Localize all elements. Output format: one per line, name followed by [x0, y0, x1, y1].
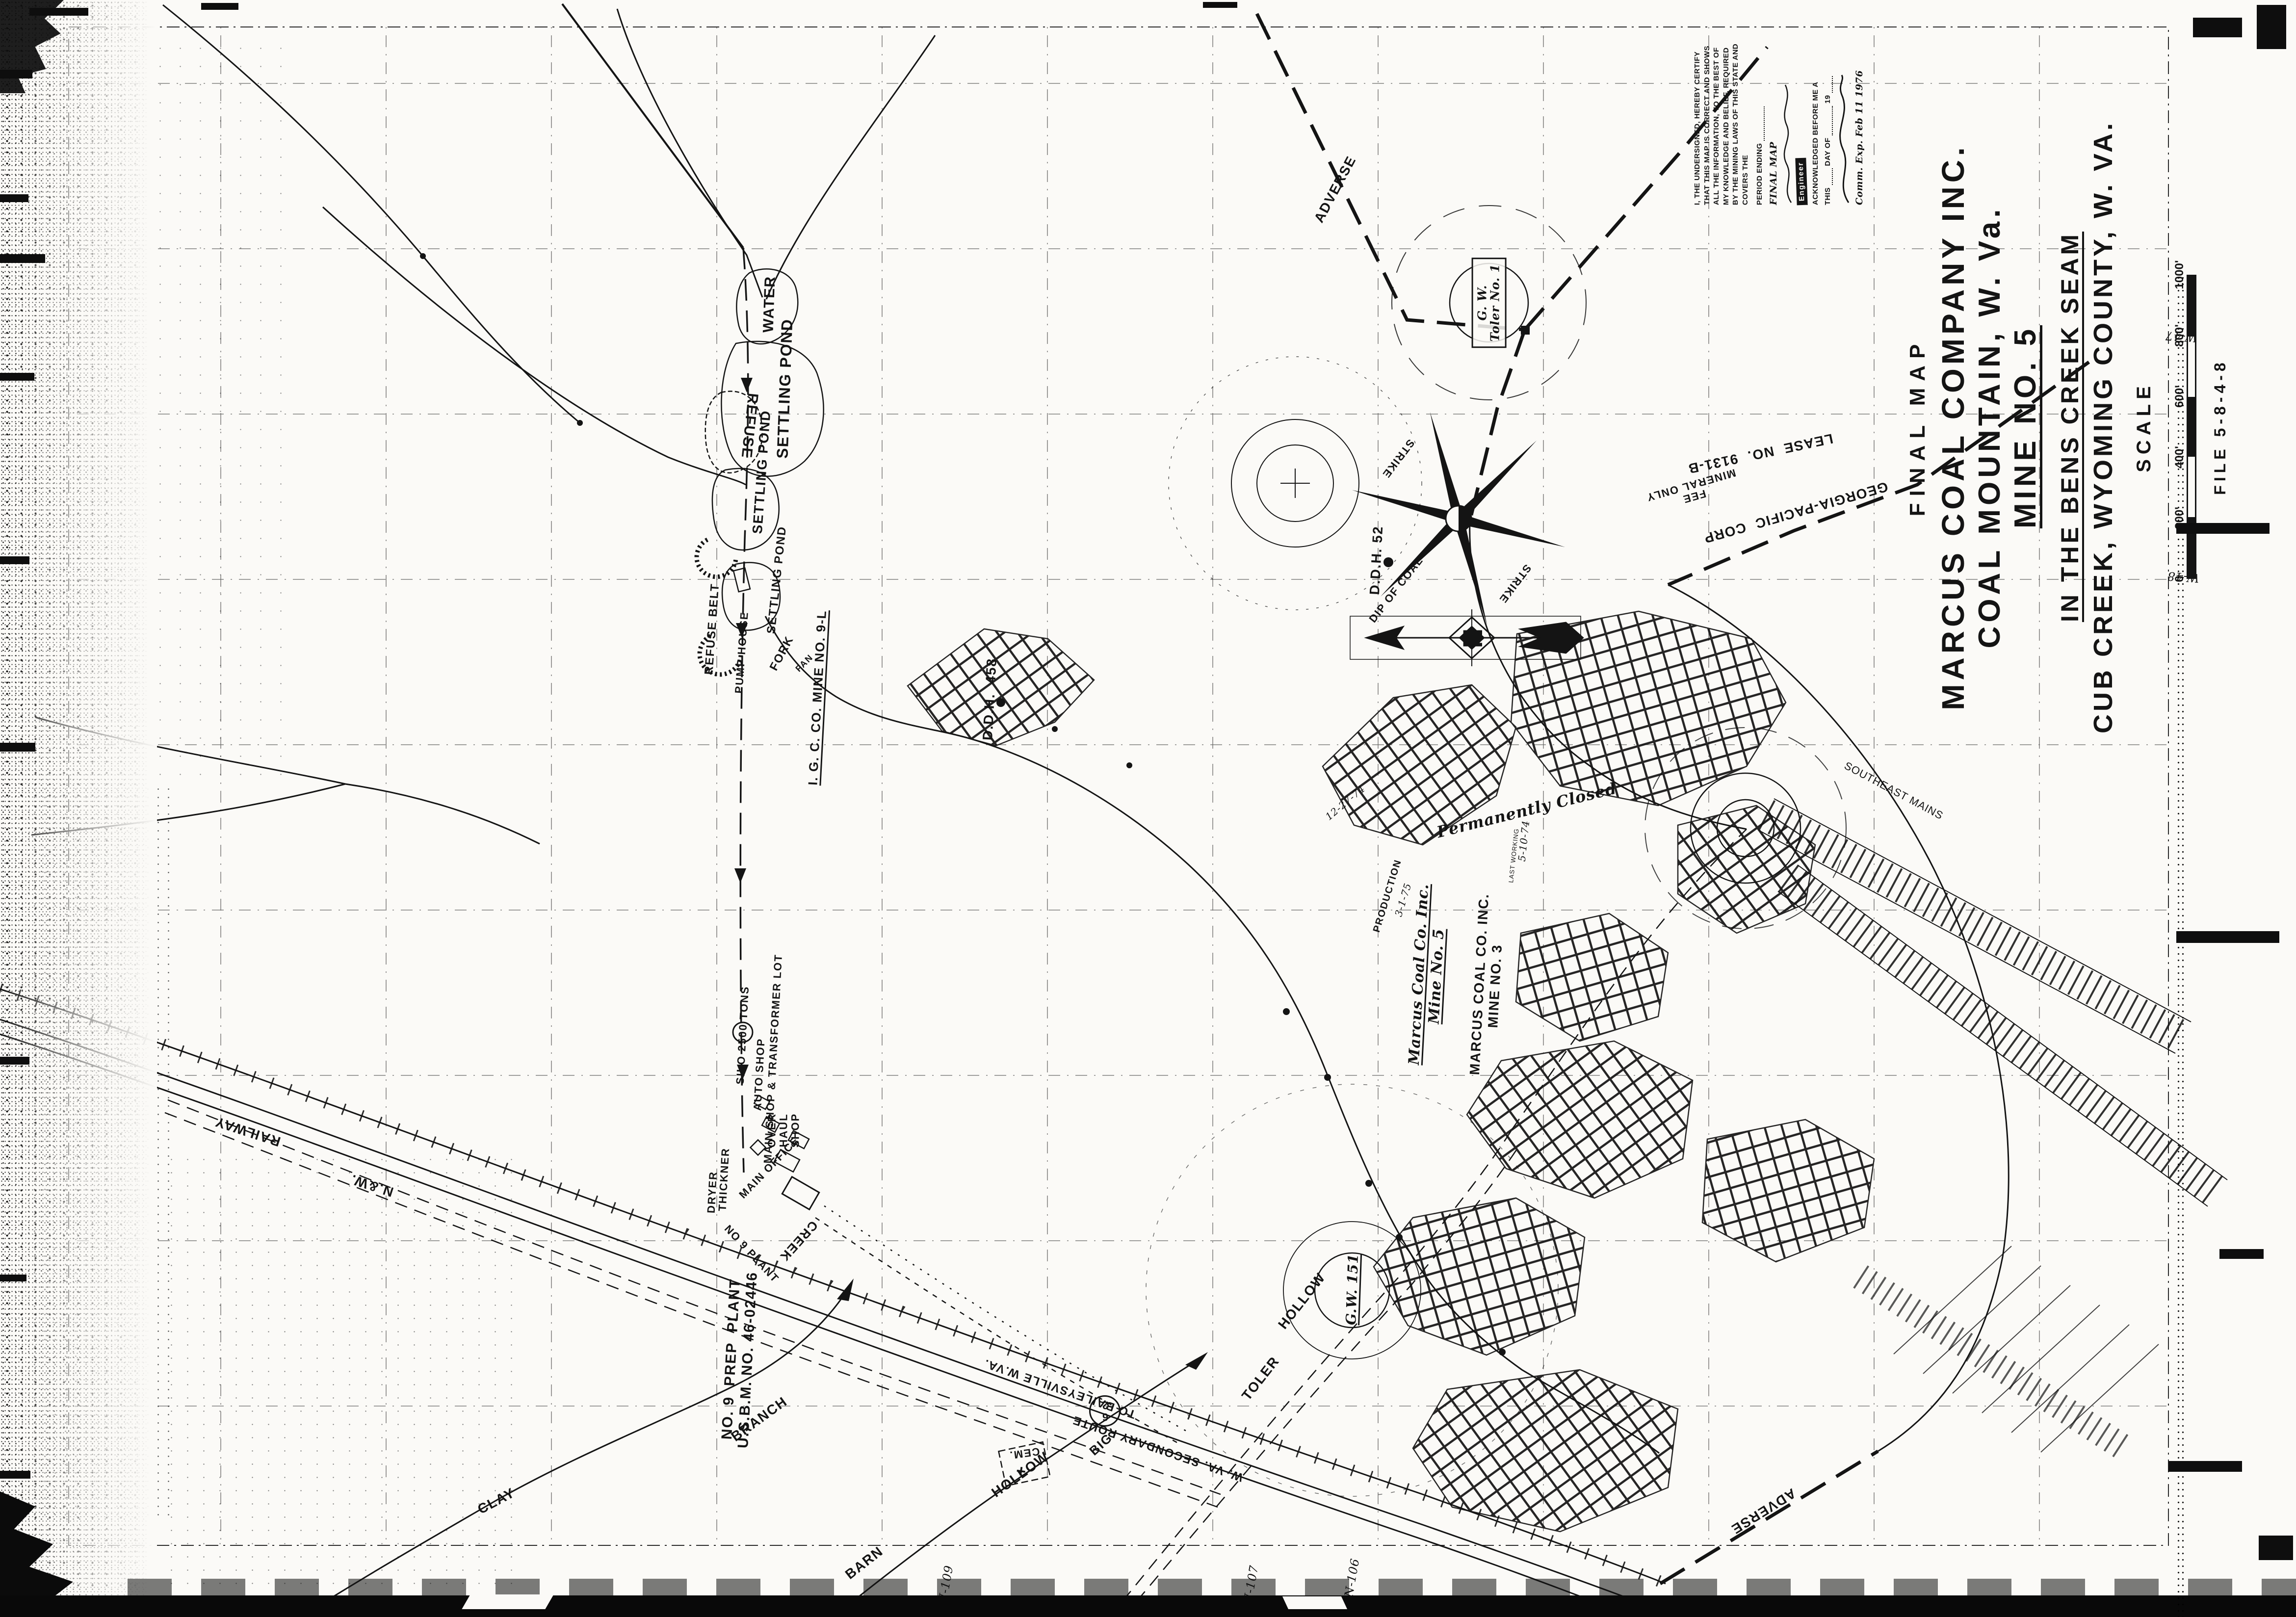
- edge-tick: [0, 70, 32, 78]
- mine-number: MINE NO. 5: [2008, 29, 2043, 824]
- edge-tick: [0, 1275, 26, 1281]
- scan-band-bottom-broken: [128, 1579, 2296, 1596]
- this-label: THIS: [1824, 187, 1832, 205]
- strike-sw-label: STRIKE: [1496, 562, 1533, 606]
- pump-house-label: PUMP HOUSE: [733, 611, 751, 694]
- scan-band-tear: [462, 1594, 553, 1609]
- lease-no-label: LEASE NO. 9131-B: [1686, 431, 1834, 476]
- period-ending-value: FINAL MAP: [1768, 43, 1780, 205]
- north-letter-label: N: [1458, 627, 1488, 648]
- year-blank: [1826, 76, 1833, 93]
- toler-label: TOLER: [1239, 1354, 1283, 1403]
- edge-tick: [0, 743, 35, 752]
- gas-well-toler-label: G. W.Toler No. 1: [1472, 258, 1507, 348]
- edge-tick: [2219, 1249, 2264, 1259]
- edge-tick: [2176, 931, 2279, 943]
- edge-tick: [2259, 1536, 2293, 1560]
- scan-speckle-midleft: [147, 1153, 520, 1594]
- creek-label: CREEK: [777, 1218, 821, 1264]
- day-of-label: DAY OF: [1824, 137, 1832, 166]
- certification-statement: I, THE UNDERSIGNED, HEREBY CERTIFY THAT …: [1693, 43, 1750, 205]
- engineer-stamp: Engineer: [1796, 157, 1808, 205]
- toler-hollow-label: HOLLOW: [1276, 1270, 1329, 1332]
- edge-tick: [0, 254, 45, 263]
- barn-label: BARN: [842, 1544, 886, 1583]
- refuse-belt-label: REFUSE BELT: [703, 583, 722, 675]
- edge-tick: [0, 1471, 30, 1479]
- marcus-mine3-2-label: MINE NO. 3: [1486, 944, 1505, 1028]
- year-prefix: 19: [1824, 95, 1832, 104]
- period-ending-label: PERIOD ENDING: [1755, 143, 1764, 205]
- edge-tick: [2257, 5, 2286, 49]
- adverse-top-label: ADVERSE: [1311, 154, 1359, 225]
- ddh-52-label: D.D.H. 52: [1367, 525, 1386, 595]
- day-blank: [1826, 168, 1833, 185]
- map-type-title: FINAL MAP: [1905, 29, 1930, 824]
- igc-mine-label: I. G. C. CO. MINE NO. 9-L: [806, 610, 829, 786]
- period-ending-line: PERIOD ENDING: [1755, 43, 1765, 205]
- production-date-label: 3-1-75: [1393, 882, 1413, 918]
- silo-label: SILO 2500 TONS: [734, 986, 752, 1085]
- ddh-458-label: D.D.H. 458: [980, 657, 1000, 741]
- acknowledged-line: ACKNOWLEDGED BEFORE ME A: [1811, 43, 1821, 205]
- edge-tick: [1203, 2, 1237, 8]
- strike-ne-label: STRIKE: [1380, 437, 1416, 481]
- edge-tick: [201, 3, 238, 10]
- adverse-bottom-label: ADVERSE: [1728, 1485, 1799, 1537]
- edge-tick: [2193, 18, 2242, 37]
- route-shield-label: 62: [1089, 1395, 1121, 1427]
- map-sheet: WATERSETTLING PONDREFUSESETTLING PONDSET…: [0, 0, 2296, 1617]
- scan-band-tear-2: [1282, 1596, 1347, 1609]
- notary-signature-squiggle: [1836, 73, 1852, 205]
- scan-noise-left-fade: [0, 0, 157, 1617]
- month-blank: [1826, 106, 1833, 135]
- gas-well-151-label: G.W. 151: [1344, 1253, 1361, 1326]
- settling-pond-1-label: SETTLING POND: [774, 318, 796, 459]
- water-pond-label: WATER: [760, 275, 778, 333]
- scan-strip-right: [2176, 275, 2186, 1617]
- fork-label: FORK: [768, 634, 797, 673]
- company-location: COAL MOUNTAIN, W. Va.: [1972, 29, 2007, 824]
- scan-band-bottom: [0, 1595, 2296, 1617]
- edge-tick: [0, 1057, 29, 1065]
- this-day-of-line: THIS DAY OF 19: [1823, 43, 1833, 205]
- settling-pond-3-label: SETTLING POND: [765, 525, 789, 634]
- seam-name: IN THE BENS CREEK SEAM: [2056, 29, 2084, 824]
- company-name: MARCUS COAL COMPANY INC.: [1935, 29, 1971, 824]
- thickner-label: THICKNER: [717, 1148, 732, 1212]
- certification-block: I, THE UNDERSIGNED, HEREBY CERTIFY THAT …: [1693, 43, 1869, 205]
- file-number: FILE 5-8-4-8: [2211, 29, 2229, 824]
- edge-tick: [0, 556, 29, 564]
- edge-tick: [0, 373, 34, 381]
- edge-tick: [2176, 523, 2270, 534]
- edge-tick: [0, 194, 28, 202]
- county-location: CUB CREEK, WYOMING COUNTY, W. VA.: [2088, 29, 2118, 824]
- period-ending-blank: [1758, 106, 1765, 141]
- edge-tick: [2168, 1461, 2242, 1472]
- date-12-27-74-label: 12-27-74: [1323, 783, 1367, 822]
- railway-label: RAILWAY: [213, 1114, 283, 1149]
- commission-expiry: Comm. Exp. Feb 11 1976: [1853, 43, 1866, 205]
- scale-label: SCALE: [2133, 29, 2155, 824]
- engineer-signature-squiggle: [1780, 82, 1795, 205]
- edge-tick: [29, 8, 88, 16]
- title-block: FINAL MAP MARCUS COAL COMPANY INC. COAL …: [1904, 29, 2134, 824]
